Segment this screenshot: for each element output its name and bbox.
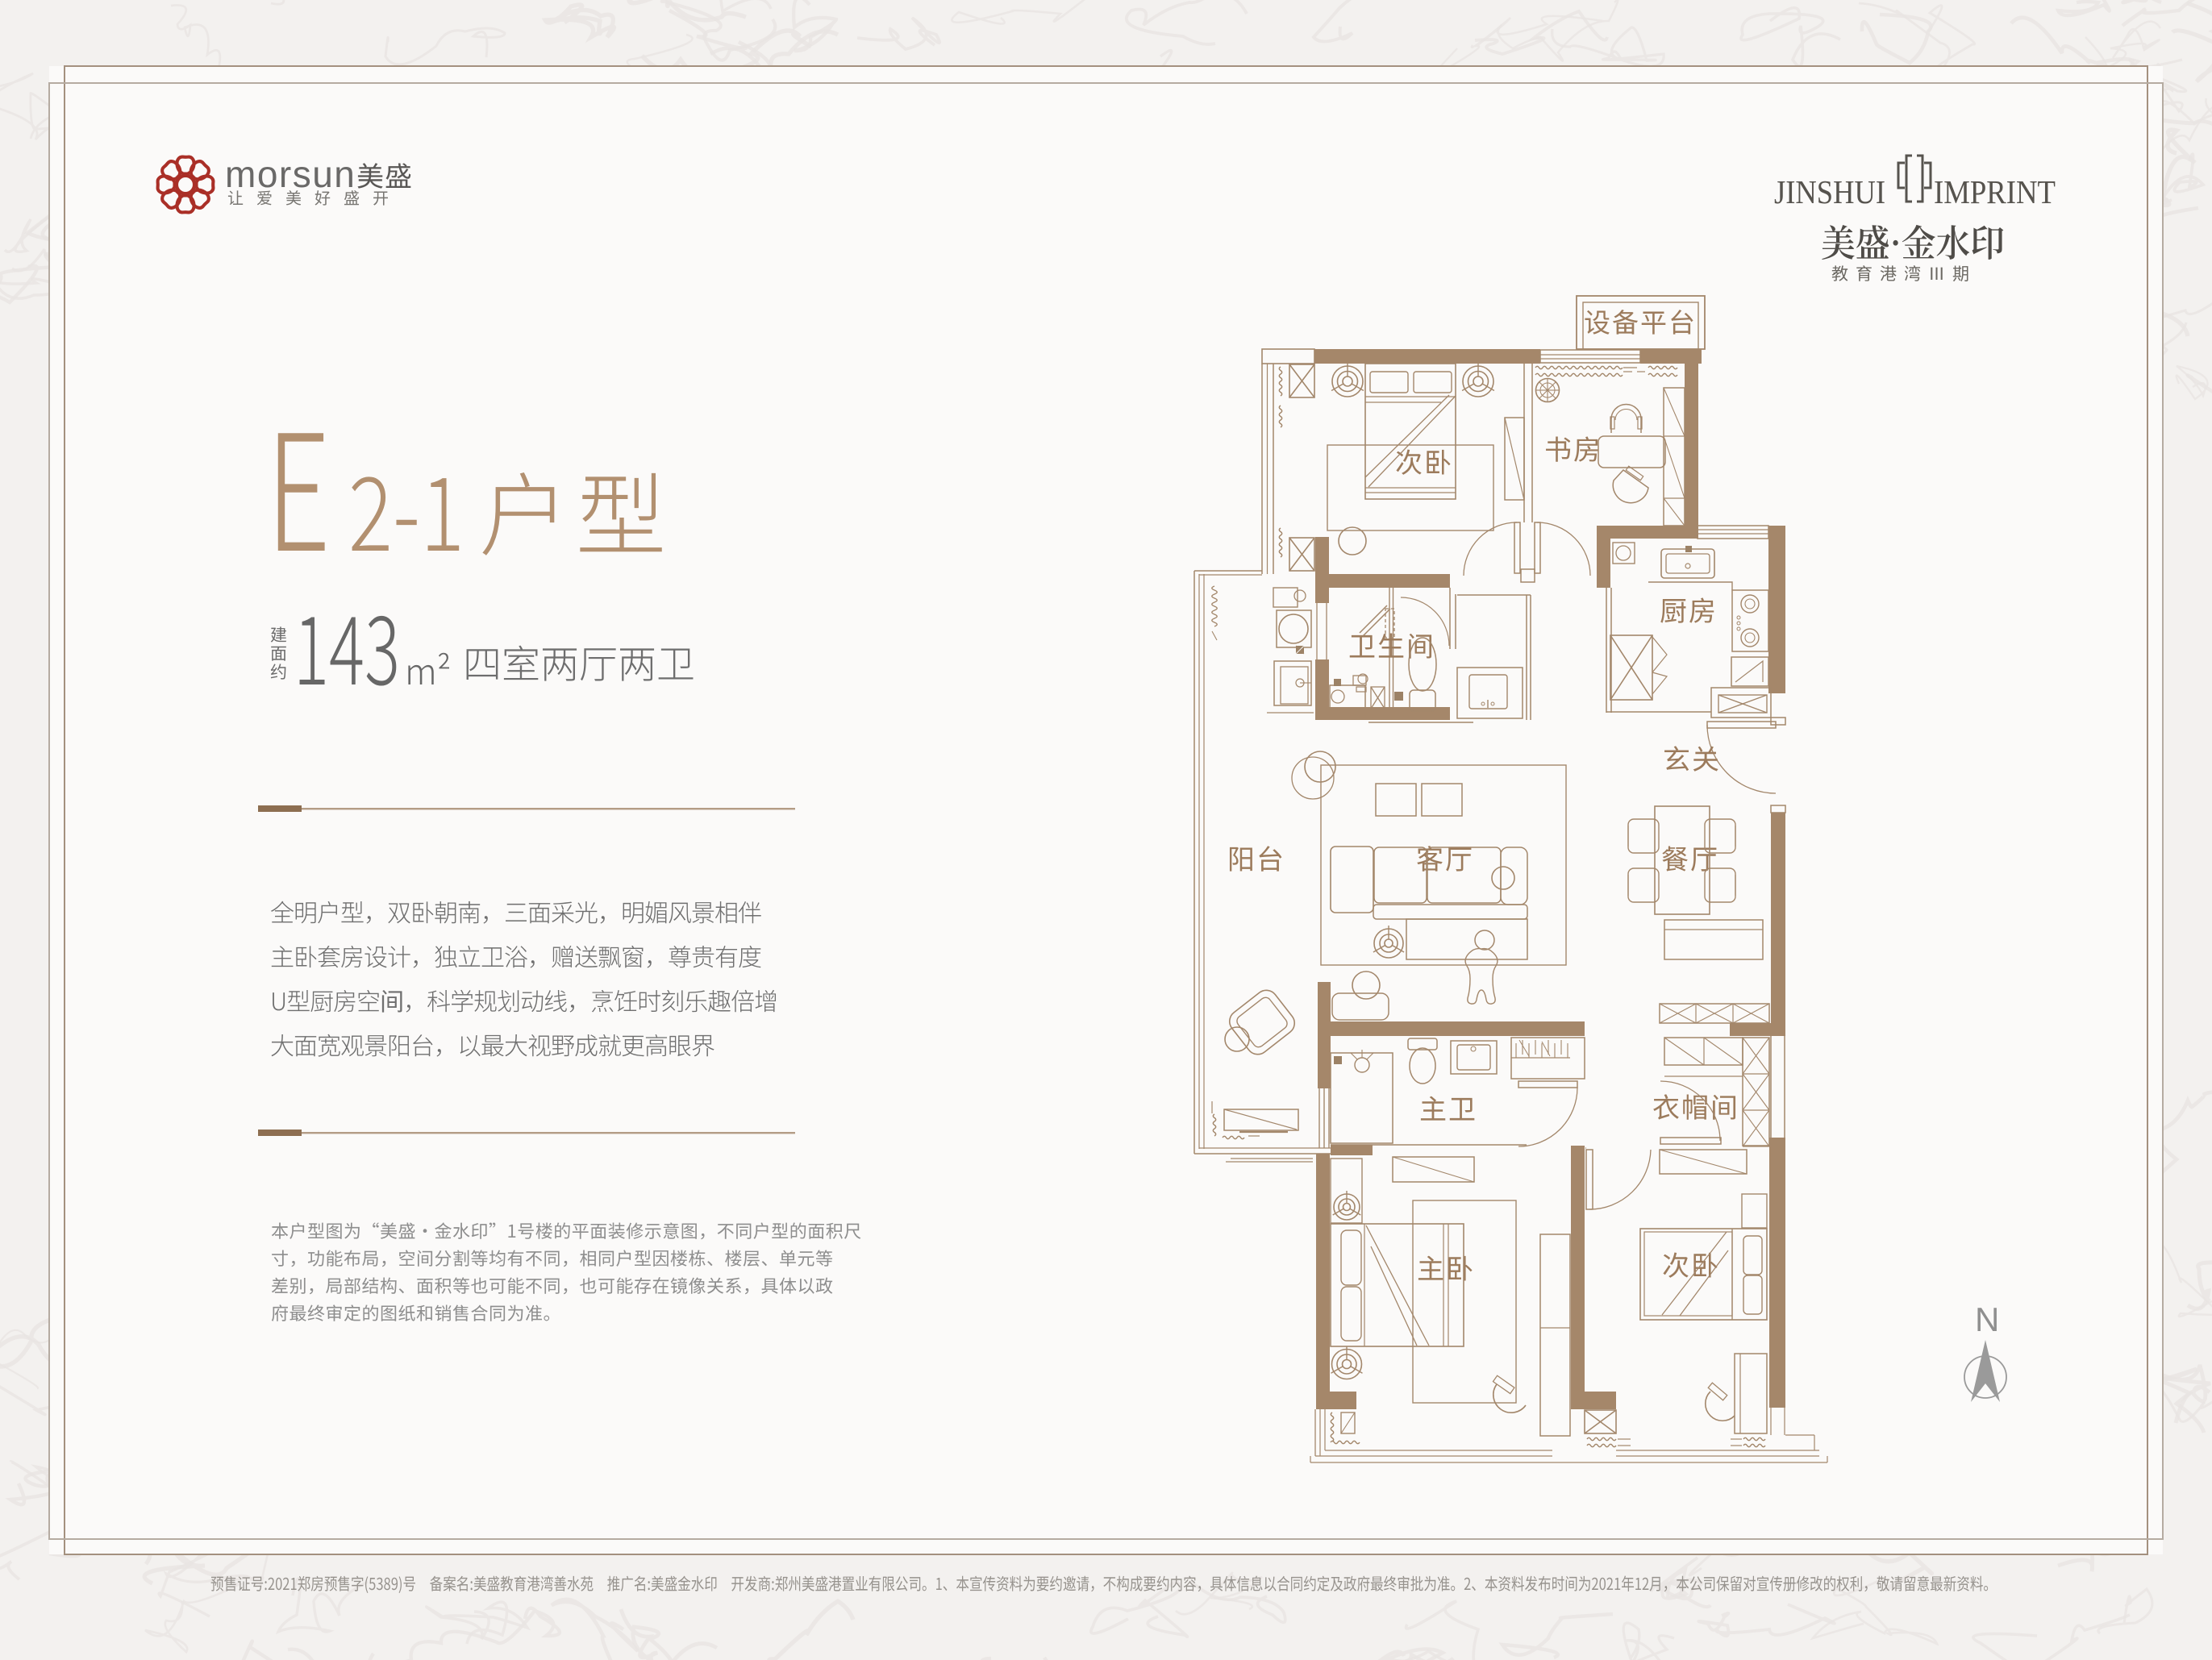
svg-text:府最终审定的图纸和销售合同为准。: 府最终审定的图纸和销售合同为准。 xyxy=(271,1300,561,1325)
svg-text:N: N xyxy=(1975,1300,1999,1338)
svg-text:本户型图为“美盛·金水印”1号楼的平面装修示意图，不同户型的: 本户型图为“美盛·金水印”1号楼的平面装修示意图，不同户型的面积尺 xyxy=(271,1217,862,1243)
svg-text:教育港湾Ⅲ期: 教育港湾Ⅲ期 xyxy=(1831,261,1977,285)
svg-text:约: 约 xyxy=(270,659,287,684)
svg-text:主卧套房设计，独立卫浴，赠送飘窗，尊贵有度: 主卧套房设计，独立卫浴，赠送飘窗，尊贵有度 xyxy=(270,938,761,973)
svg-text:书房: 书房 xyxy=(1544,428,1602,468)
svg-text:IMPRINT: IMPRINT xyxy=(1934,173,2056,210)
svg-text:大面宽观景阳台，以最大视野成就更高眼界: 大面宽观景阳台，以最大视野成就更高眼界 xyxy=(270,1026,714,1062)
svg-text:主卧: 主卧 xyxy=(1417,1247,1475,1287)
svg-text:设备平台: 设备平台 xyxy=(1584,302,1697,340)
svg-text:m²: m² xyxy=(405,643,452,695)
svg-text:2-1: 2-1 xyxy=(348,432,464,580)
svg-text:主卫: 主卫 xyxy=(1419,1088,1477,1127)
svg-text:JINSHUI: JINSHUI xyxy=(1774,173,1885,210)
svg-text:寸，功能布局，空间分割等均有不同，相同户型因楼栋、楼层、单元: 寸，功能布局，空间分割等均有不同，相同户型因楼栋、楼层、单元等 xyxy=(271,1245,834,1271)
svg-text:预售证号:2021郑房预售字(5389)号 备案名:美盛教育: 预售证号:2021郑房预售字(5389)号 备案名:美盛教育港湾善水苑 推广名:… xyxy=(210,1571,1997,1595)
svg-text:全明户型，双卧朝南，三面采光，明媚风景相伴: 全明户型，双卧朝南，三面采光，明媚风景相伴 xyxy=(270,893,761,929)
svg-text:E: E xyxy=(266,364,331,597)
svg-text:次卧: 次卧 xyxy=(1395,441,1453,481)
svg-text:阳台: 阳台 xyxy=(1227,838,1285,877)
svg-text:餐厅: 餐厅 xyxy=(1661,838,1719,877)
svg-text:玄关: 玄关 xyxy=(1663,738,1721,777)
svg-text:衣帽间: 衣帽间 xyxy=(1652,1086,1739,1125)
svg-text:U型厨房空间，科学规划动线，烹饪时刻乐趣倍增: U型厨房空间，科学规划动线，烹饪时刻乐趣倍增 xyxy=(270,982,777,1017)
svg-text:户型: 户型 xyxy=(479,444,673,575)
svg-text:143: 143 xyxy=(294,574,400,712)
svg-text:美盛·金水印: 美盛·金水印 xyxy=(1821,214,2005,268)
svg-text:厨房: 厨房 xyxy=(1660,589,1718,629)
svg-text:客厅: 客厅 xyxy=(1416,838,1474,877)
svg-text:让爱美好盛开: 让爱美好盛开 xyxy=(227,185,402,209)
svg-text:四室两厅两卫: 四室两厅两卫 xyxy=(463,633,695,689)
svg-text:差别，局部结构、面积等也可能不同，也可能存在镜像关系，具体以: 差别，局部结构、面积等也可能不同，也可能存在镜像关系，具体以政 xyxy=(271,1272,834,1298)
